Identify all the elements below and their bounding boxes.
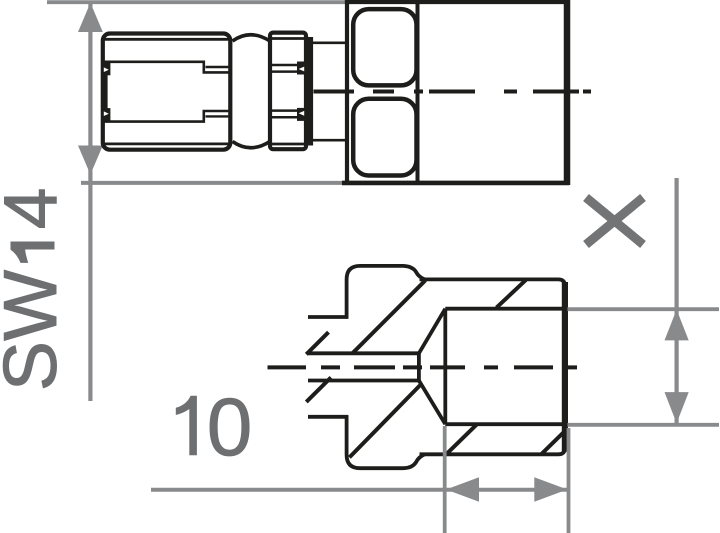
svg-text:0: 0 — [207, 382, 253, 473]
svg-text:S: S — [0, 341, 72, 391]
svg-text:4: 4 — [0, 188, 72, 230]
svg-text:W: W — [0, 270, 72, 341]
